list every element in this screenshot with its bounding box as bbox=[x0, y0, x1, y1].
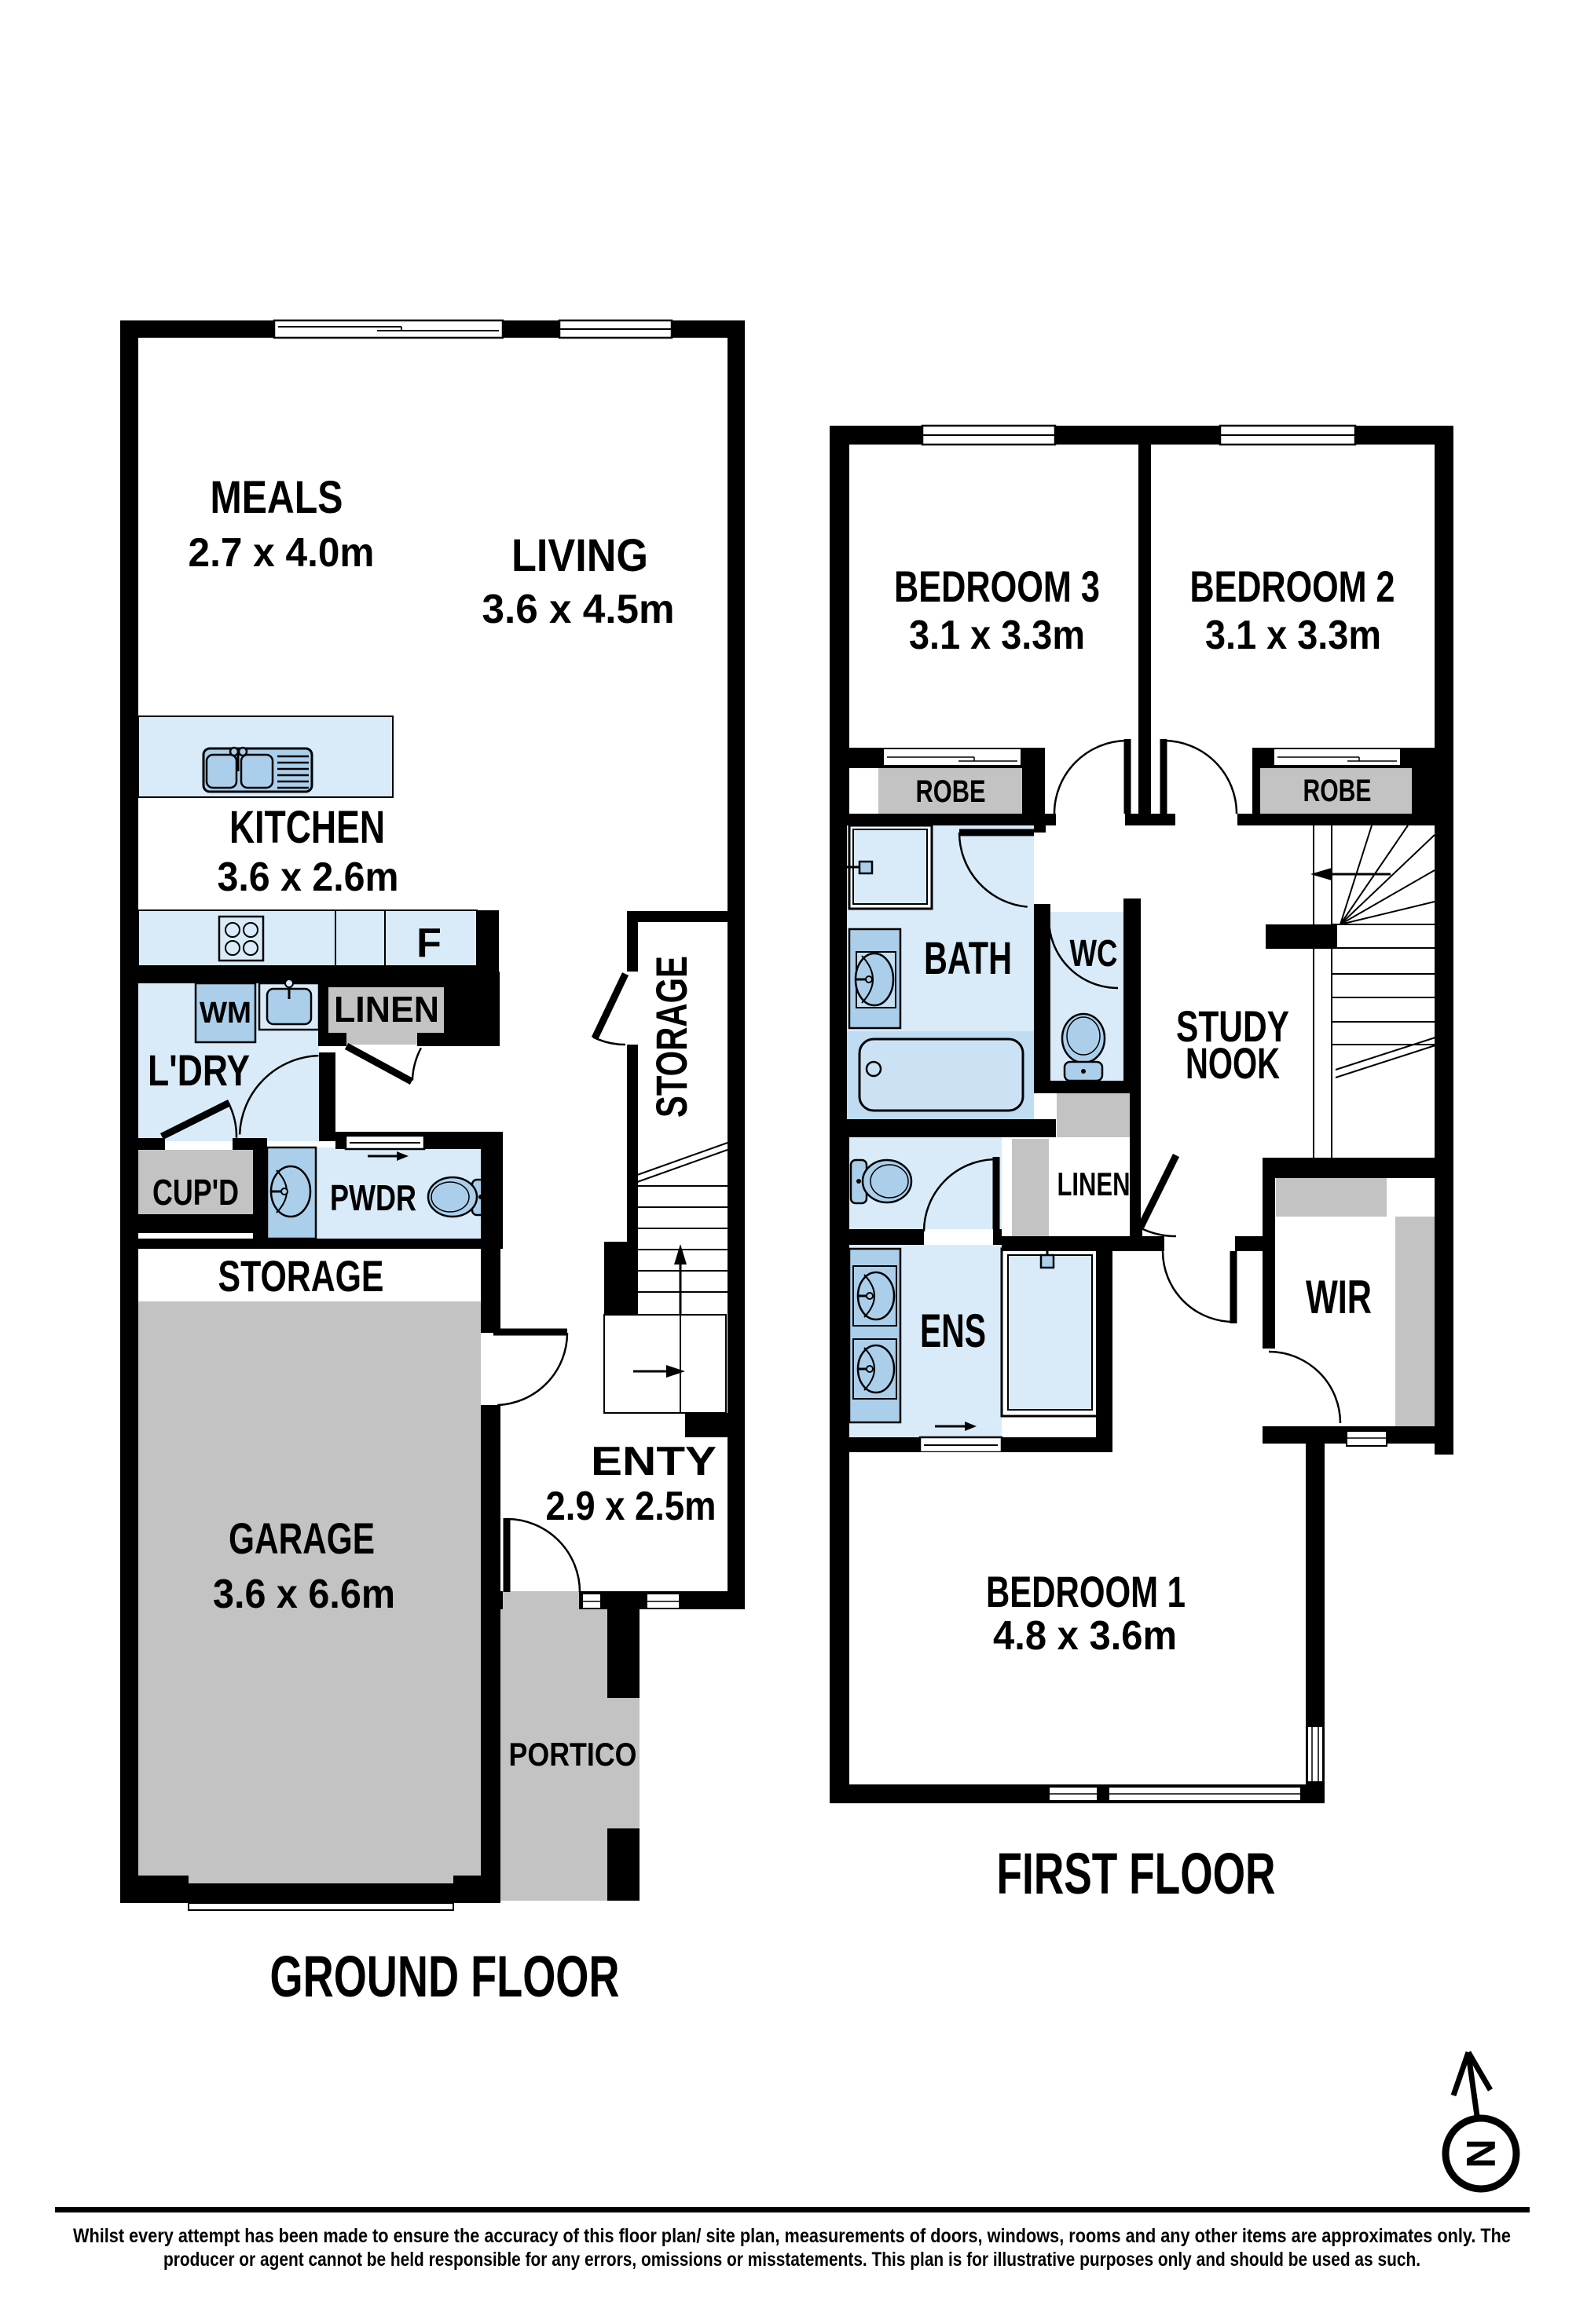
svg-text:2.9 x 2.5m: 2.9 x 2.5m bbox=[546, 1484, 717, 1529]
svg-text:3.1 x 3.3m: 3.1 x 3.3m bbox=[1205, 613, 1381, 658]
svg-text:producer or agent cannot be he: producer or agent cannot be held respons… bbox=[163, 2249, 1420, 2271]
svg-text:3.6 x 6.6m: 3.6 x 6.6m bbox=[213, 1572, 395, 1617]
svg-text:ROBE: ROBE bbox=[1303, 774, 1372, 808]
svg-text:FIRST FLOOR: FIRST FLOOR bbox=[997, 1841, 1276, 1906]
svg-text:CUP'D: CUP'D bbox=[152, 1172, 239, 1213]
svg-text:Whilst every attempt has been: Whilst every attempt has been made to en… bbox=[73, 2225, 1511, 2247]
svg-text:BEDROOM 1: BEDROOM 1 bbox=[986, 1567, 1186, 1616]
svg-text:WC: WC bbox=[1070, 933, 1118, 975]
svg-text:WIR: WIR bbox=[1306, 1271, 1372, 1323]
svg-text:PORTICO: PORTICO bbox=[509, 1736, 637, 1773]
svg-text:STORAGE: STORAGE bbox=[647, 956, 696, 1118]
svg-text:BEDROOM 3: BEDROOM 3 bbox=[894, 562, 1100, 611]
svg-text:MEALS: MEALS bbox=[211, 472, 343, 523]
svg-text:3.6 x 4.5m: 3.6 x 4.5m bbox=[482, 587, 675, 632]
svg-text:GARAGE: GARAGE bbox=[229, 1513, 375, 1563]
svg-text:LINEN: LINEN bbox=[1057, 1166, 1131, 1202]
svg-text:BATH: BATH bbox=[924, 933, 1012, 984]
svg-text:ENTY: ENTY bbox=[591, 1439, 717, 1484]
svg-text:N: N bbox=[1457, 2139, 1503, 2168]
svg-text:WM: WM bbox=[200, 997, 251, 1030]
svg-text:F: F bbox=[416, 920, 442, 966]
svg-text:LINEN: LINEN bbox=[334, 989, 439, 1030]
svg-text:STORAGE: STORAGE bbox=[218, 1251, 384, 1301]
svg-text:NOOK: NOOK bbox=[1186, 1038, 1280, 1088]
svg-text:GROUND FLOOR: GROUND FLOOR bbox=[270, 1944, 620, 2009]
svg-text:2.7 x 4.0m: 2.7 x 4.0m bbox=[189, 530, 375, 576]
svg-text:ROBE: ROBE bbox=[916, 774, 986, 809]
svg-text:4.8 x 3.6m: 4.8 x 3.6m bbox=[993, 1613, 1177, 1659]
svg-text:BEDROOM 2: BEDROOM 2 bbox=[1190, 562, 1395, 611]
svg-text:ENS: ENS bbox=[920, 1305, 986, 1357]
svg-text:L'DRY: L'DRY bbox=[148, 1045, 250, 1095]
svg-text:3.6 x 2.6m: 3.6 x 2.6m bbox=[218, 855, 399, 900]
svg-text:LIVING: LIVING bbox=[511, 530, 648, 581]
svg-text:PWDR: PWDR bbox=[330, 1177, 416, 1218]
svg-text:KITCHEN: KITCHEN bbox=[229, 802, 385, 853]
svg-text:3.1 x 3.3m: 3.1 x 3.3m bbox=[909, 613, 1085, 658]
